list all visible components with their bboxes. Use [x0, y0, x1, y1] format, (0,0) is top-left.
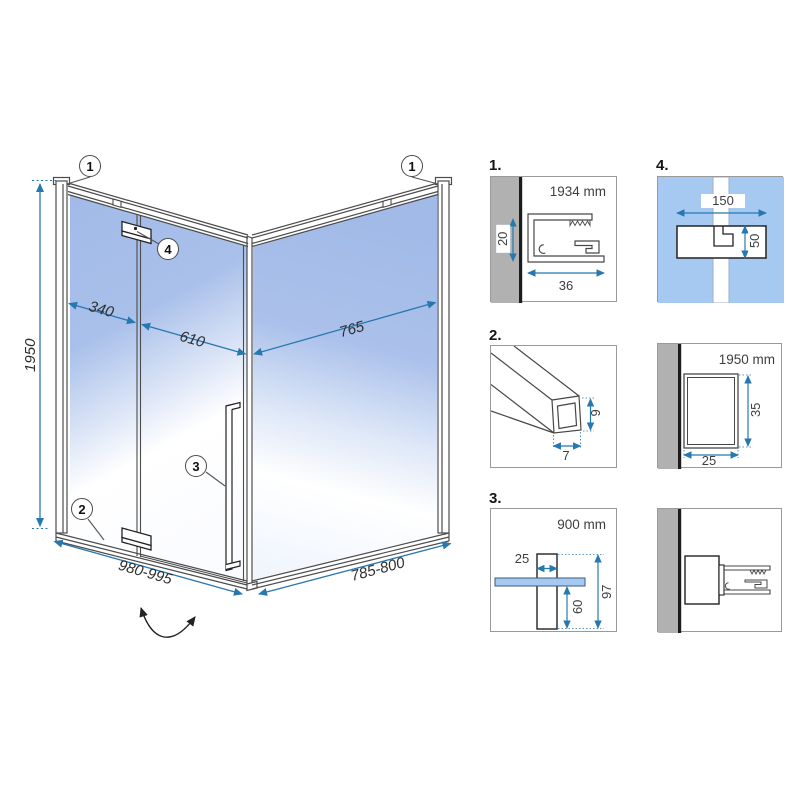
callout-3: 3	[185, 455, 207, 477]
stabilizer-tube	[491, 346, 581, 433]
profile-assembly	[724, 566, 770, 594]
detail-box-4: 150 50	[657, 176, 783, 302]
detail-1-height: 20	[496, 225, 510, 253]
callout-1-right-number: 1	[408, 159, 415, 174]
wall-profile-section	[528, 214, 604, 262]
detail-4-label: 4.	[656, 157, 669, 174]
glass-panels	[70, 194, 437, 581]
detail-3-width: 25	[507, 552, 537, 566]
detail-2-label: 2.	[489, 327, 502, 344]
detail-3-label: 3.	[489, 490, 502, 507]
detail-6-art	[658, 509, 783, 633]
technical-drawing-page: 1950 340 610 765 980-995 785-800 1 docum…	[0, 0, 800, 800]
detail-5-length: 1950 mm	[719, 352, 775, 367]
callout-1-left: 1	[79, 155, 101, 177]
callout-3-number: 3	[192, 459, 199, 474]
callout-1-right: 1	[401, 155, 423, 177]
detail-5-width: 25	[694, 454, 724, 468]
right-wall-profile	[436, 178, 452, 534]
detail-box-2: 9 7	[490, 345, 617, 468]
wall-bracket	[685, 556, 719, 604]
callout-2: 2	[71, 498, 93, 520]
detail-2-width: 7	[551, 449, 581, 463]
callout-2-number: 2	[78, 502, 85, 517]
side-glass-panel	[253, 194, 437, 581]
detail-1-width: 36	[551, 279, 581, 293]
handle-section	[537, 554, 557, 629]
callout-1-left-number: 1	[86, 159, 93, 174]
top-rail-brackets	[113, 199, 391, 207]
detail-box-5: 1950 mm 35 25	[657, 343, 782, 468]
detail-1-label: 1.	[489, 157, 502, 174]
detail-1-length: 1934 mm	[550, 184, 606, 199]
detail-3-length: 900 mm	[557, 517, 606, 532]
frame-profile-section	[684, 374, 738, 448]
detail-box-1: 1934 mm 20 36	[490, 176, 617, 302]
door-swing-arrow	[141, 608, 195, 637]
detail-5-height: 35	[749, 398, 763, 422]
glass-edge-strip	[495, 578, 585, 586]
main-drawing	[0, 140, 470, 665]
detail-box-3: 900 mm 25 60 97	[490, 508, 617, 632]
detail-3-below-glass: 60	[571, 593, 585, 621]
wall-hatch	[658, 344, 678, 469]
detail-4-height: 50	[748, 227, 762, 255]
detail-4-width: 150	[701, 194, 745, 208]
callout-4-number: 4	[164, 242, 171, 257]
callout-4: 4	[157, 238, 179, 260]
detail-box-6	[657, 508, 782, 632]
detail-3-total-height: 97	[600, 580, 614, 604]
wall-hatch	[658, 509, 678, 633]
detail-2-height: 9	[589, 401, 603, 425]
left-wall-profile	[54, 178, 70, 534]
glass-clamp	[719, 565, 724, 595]
dim-height: 1950	[23, 335, 40, 375]
